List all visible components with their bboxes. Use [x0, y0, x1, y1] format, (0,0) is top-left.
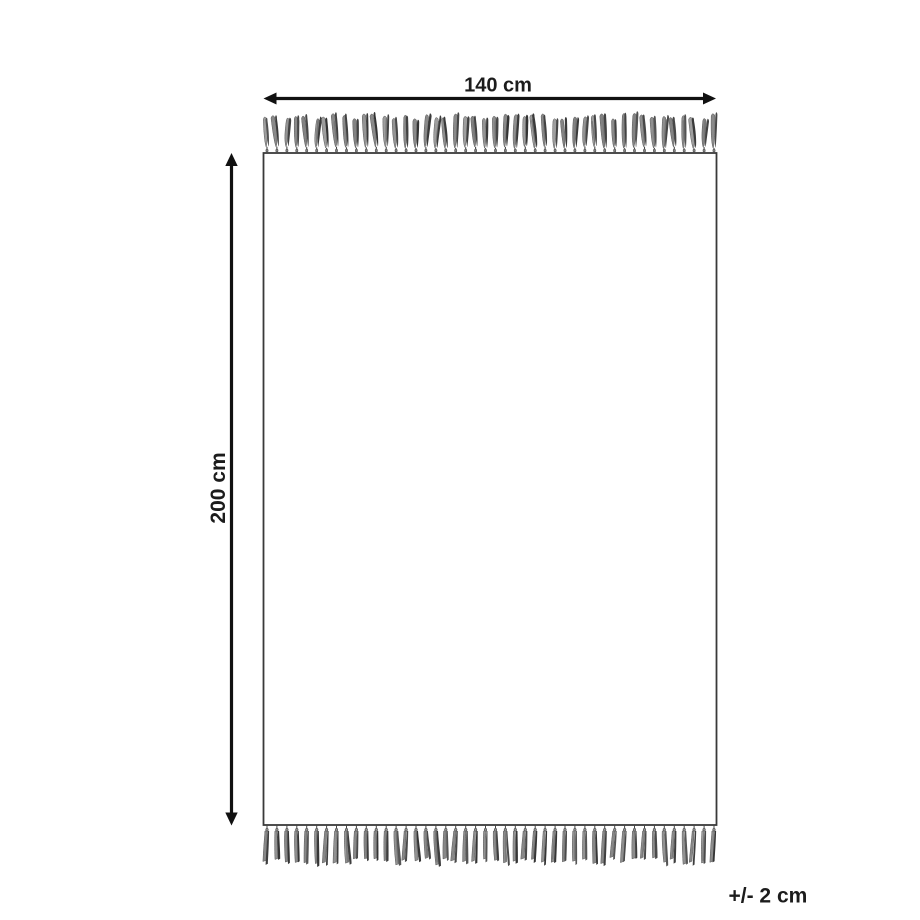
- svg-text:+/- 2 cm: +/- 2 cm: [729, 885, 808, 908]
- svg-text:140 cm: 140 cm: [464, 75, 532, 97]
- svg-text:200 cm: 200 cm: [207, 452, 230, 523]
